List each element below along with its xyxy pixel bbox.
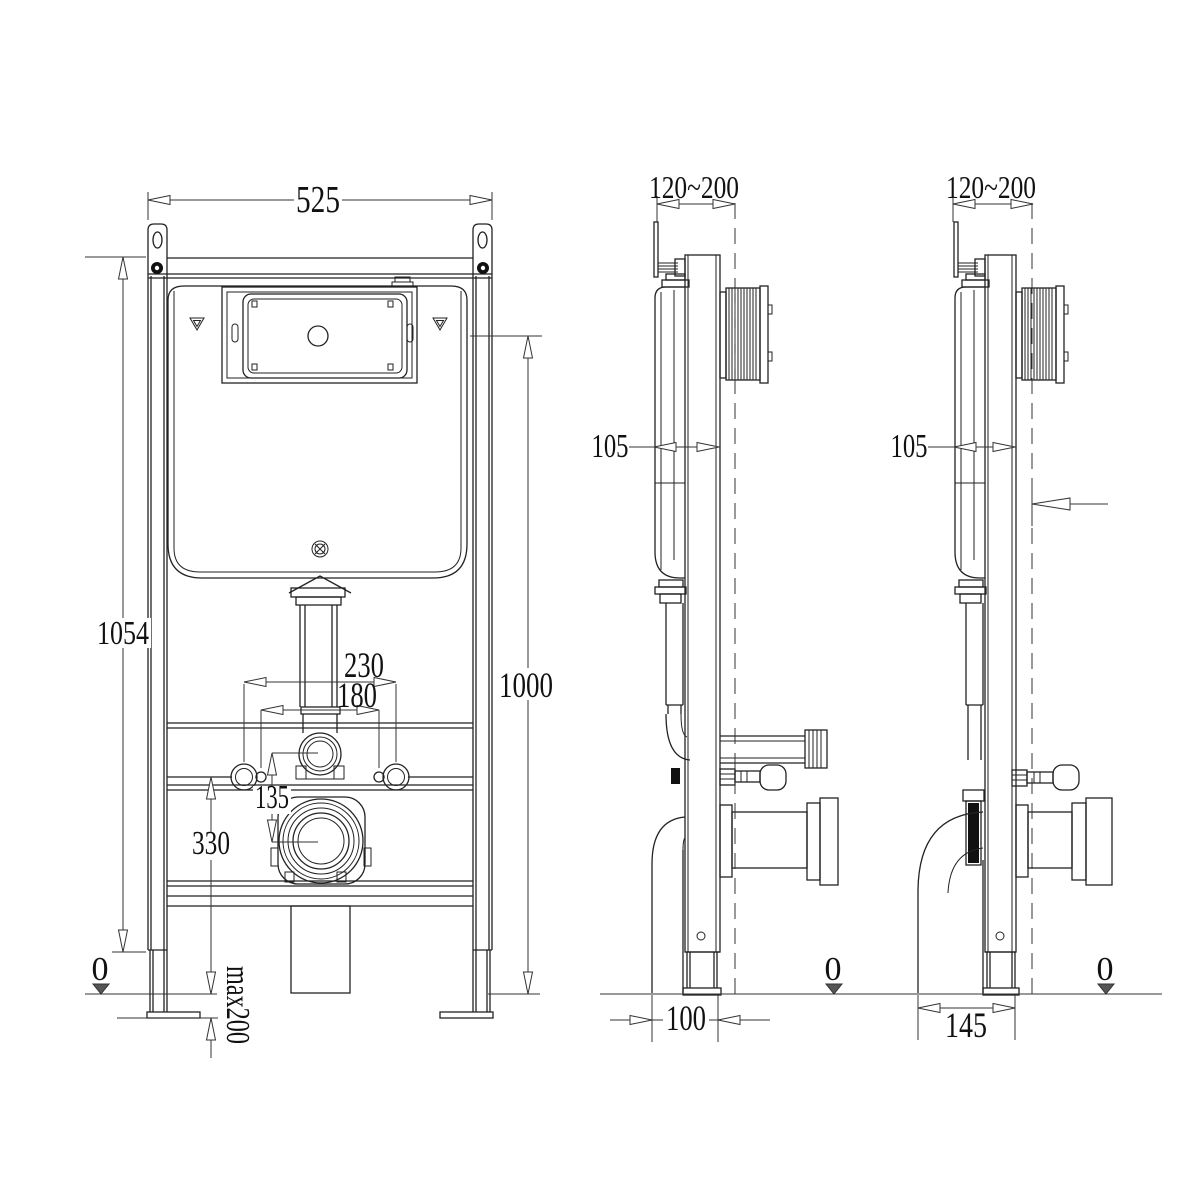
technical-drawing-page: 525 1054 1000 230 180 <box>0 0 1200 1200</box>
top-screws <box>151 262 489 274</box>
frame-leg-side <box>683 932 721 995</box>
dim-bolt-spacing-inner: 180 <box>261 675 379 768</box>
level-marker-b: 0 <box>1097 951 1115 994</box>
wall-surface-arrow <box>1032 492 1108 526</box>
dim-frame-width: 525 <box>148 179 492 221</box>
dim-frame-depth-a: 105 <box>592 428 721 465</box>
dim-frame-depth-a-label: 105 <box>592 428 629 465</box>
dimension-annotations: 525 1054 1000 230 180 <box>85 169 1114 1058</box>
dim-foot-adjustment-label: max200 <box>219 966 256 1044</box>
bellows-access-duct-b <box>1016 286 1068 383</box>
dim-bolt-height-label: 330 <box>192 825 230 862</box>
dim-frame-height: 1054 <box>85 257 151 952</box>
cistern-screw-icon <box>312 541 328 557</box>
dim-flush-plate-height: 1000 <box>470 336 556 994</box>
dim-drain-offset-a: 100 <box>610 995 770 1042</box>
dim-wall-range-b-label: 120~200 <box>946 169 1036 205</box>
wc-frame-installation-drawing: 525 1054 1000 230 180 <box>0 0 1200 1200</box>
adjust-hole <box>697 932 705 940</box>
dim-drain-offset-b: 145 <box>918 995 1015 1045</box>
level-zero-b-label: 0 <box>1097 951 1114 988</box>
dim-drain-offset-b-label: 145 <box>945 1005 987 1045</box>
adjustable-feet <box>147 950 493 1018</box>
finish-symbol-left <box>190 318 204 330</box>
fixing-stud-side-b <box>1012 765 1079 790</box>
level-zero-front-label: 0 <box>92 951 109 988</box>
dim-flush-plate-height-label: 1000 <box>499 665 553 705</box>
flush-pipe-connection <box>299 733 341 775</box>
drain-socket-side-b <box>1016 798 1112 885</box>
drain-elbow-side <box>652 817 685 993</box>
level-marker-a: 0 <box>825 951 843 994</box>
frame-profile <box>685 255 720 952</box>
dim-wall-range-a: 120~200 <box>649 169 739 222</box>
cistern <box>168 286 467 578</box>
wall-anchor-plate <box>654 222 658 277</box>
dim-frame-depth-b-label: 105 <box>891 428 928 465</box>
level-triangle-icon <box>93 984 109 994</box>
dim-frame-depth-b: 105 <box>891 428 1017 465</box>
level-marker-front: 0 <box>92 951 110 994</box>
flush-connector-ribbed <box>805 730 827 768</box>
flush-pipe-side <box>666 603 827 768</box>
front-view <box>85 224 540 1018</box>
level-zero-a-label: 0 <box>825 951 842 988</box>
dim-frame-height-label: 1054 <box>97 615 149 652</box>
side-view-a <box>600 203 908 995</box>
level-triangle-icon <box>1098 984 1114 994</box>
side-view-b <box>893 203 1162 995</box>
mounting-tabs <box>148 224 492 262</box>
drain-socket-side <box>720 798 838 885</box>
dim-flush-to-drain-label: 135 <box>255 779 289 816</box>
dim-wall-range-a-label: 120~200 <box>649 169 739 205</box>
dim-drain-offset-a-label: 100 <box>666 998 706 1038</box>
wall-anchor-plate-b <box>954 222 958 277</box>
flush-plate-center-hole <box>308 326 328 346</box>
flush-plate-access-box <box>222 277 417 383</box>
stud-cap <box>760 765 786 790</box>
dim-wall-range-b: 120~200 <box>946 169 1036 222</box>
drain-box <box>291 906 350 993</box>
dim-frame-width-label: 525 <box>296 179 340 221</box>
finish-symbol-right <box>433 318 447 330</box>
dim-bolt-spacing-inner-label: 180 <box>337 675 377 715</box>
flush-pipe-side-b <box>963 603 984 865</box>
bellows-access-duct <box>720 286 772 383</box>
frame-profile-b <box>985 255 1016 952</box>
level-triangle-icon <box>826 984 842 994</box>
